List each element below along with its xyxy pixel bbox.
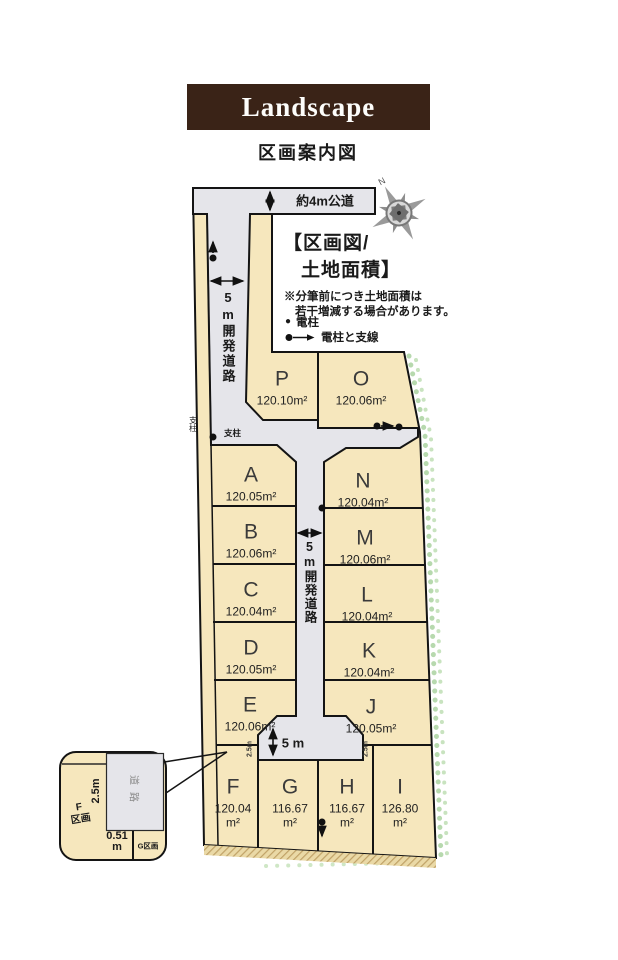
flyer-page: Landscape 区画案内図: [0, 0, 618, 960]
plot-label-p: P 120.10m²: [257, 369, 308, 408]
plot-label-k: K 120.04m²: [344, 641, 395, 680]
support-pole-label-vertical: 支柱: [188, 416, 199, 432]
legend-pole-label: 電柱: [296, 314, 319, 330]
inset-plot-f-label: F 区画: [68, 801, 92, 828]
legend-note-line1: ※分筆前につき土地面積は: [284, 288, 422, 304]
dev-road-label-center: 5m開発道路: [301, 540, 320, 624]
pole-dot-icon: ●: [285, 317, 291, 327]
site-plan-svg: N: [0, 0, 618, 960]
legend-item-pole: ● 電柱: [285, 314, 319, 330]
legend-item-guywire: 電柱と支線: [285, 329, 379, 345]
plot-label-l: L 120.04m²: [342, 585, 393, 624]
plot-label-e: E 120.06m²: [225, 695, 276, 734]
compass-north-label: N: [377, 175, 387, 187]
plot-label-j: J 120.05m²: [346, 697, 397, 736]
plot-label-f: F 120.04 m²: [215, 777, 252, 830]
plot-label-b: B 120.06m²: [226, 522, 277, 561]
plot-label-n: N 120.04m²: [338, 471, 389, 510]
plot-label-g: G 116.67 m²: [272, 777, 308, 830]
plot-label-h: H 116.67 m²: [329, 777, 365, 830]
pole-guywire-icon: [285, 333, 316, 342]
setback-label-west: 2.5m: [247, 741, 254, 757]
plot-label-d: D 120.05m²: [226, 638, 277, 677]
support-pole-label-horizontal: 支柱: [224, 427, 241, 439]
legend-heading-line2: 土地面積】: [301, 255, 401, 282]
legend-heading-line1: 【区画図/: [283, 228, 369, 255]
legend-guywire-label: 電柱と支線: [321, 329, 379, 345]
public-road-label: 約4m公道: [296, 191, 354, 210]
inset-offset-label: 0.51 m: [106, 831, 127, 853]
setback-label-east: 2.5m: [363, 741, 370, 757]
inset-road-label: 道路: [128, 775, 143, 809]
plot-label-o: O 120.06m²: [336, 369, 387, 408]
plot-label-m: M 120.06m²: [340, 528, 391, 567]
inset-plot-g-label: G区画: [138, 841, 159, 852]
plot-label-c: C 120.04m²: [226, 580, 277, 619]
plot-label-i: I 126.80 m²: [382, 777, 419, 830]
inset-width-label: 2.5m: [90, 778, 102, 803]
dev-road-label-west: 5m開発道路: [219, 290, 238, 384]
turnaround-width-label: 5 m: [282, 736, 304, 751]
plot-label-a: A 120.05m²: [226, 465, 277, 504]
